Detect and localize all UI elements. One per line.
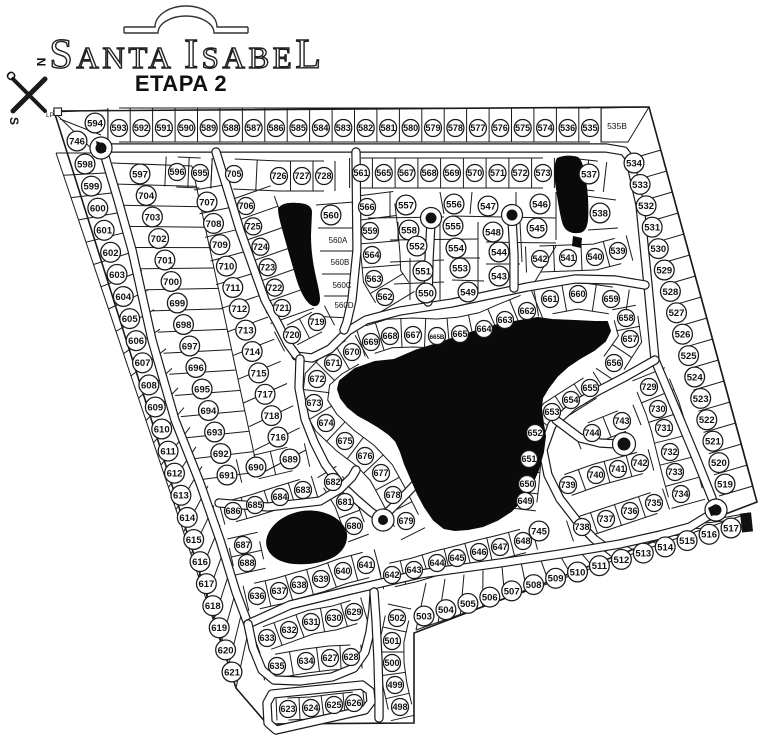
svg-text:562: 562 xyxy=(377,292,392,302)
svg-text:673: 673 xyxy=(306,398,321,408)
svg-text:508: 508 xyxy=(526,580,542,591)
svg-text:586: 586 xyxy=(268,123,283,133)
svg-text:ETAPA 2: ETAPA 2 xyxy=(135,71,227,96)
svg-text:592: 592 xyxy=(134,123,149,133)
svg-text:660: 660 xyxy=(570,289,585,299)
svg-text:702: 702 xyxy=(151,234,167,245)
svg-text:539: 539 xyxy=(610,246,625,256)
svg-text:524: 524 xyxy=(687,372,704,383)
svg-text:615: 615 xyxy=(186,535,203,546)
svg-text:529: 529 xyxy=(656,265,672,276)
svg-text:528: 528 xyxy=(662,287,678,298)
svg-text:632: 632 xyxy=(281,625,296,635)
svg-text:686: 686 xyxy=(225,506,240,516)
svg-text:533: 533 xyxy=(632,180,648,191)
svg-text:561: 561 xyxy=(353,168,368,178)
svg-text:520: 520 xyxy=(711,458,727,469)
svg-text:696: 696 xyxy=(188,363,204,374)
svg-text:537: 537 xyxy=(581,169,597,180)
svg-text:535B: 535B xyxy=(607,121,627,131)
svg-text:674: 674 xyxy=(318,418,333,428)
svg-text:625: 625 xyxy=(326,700,341,710)
svg-text:732: 732 xyxy=(662,447,677,457)
svg-text:671: 671 xyxy=(325,358,340,368)
svg-text:676: 676 xyxy=(357,451,372,461)
svg-text:588: 588 xyxy=(224,123,239,133)
svg-text:559: 559 xyxy=(362,226,377,236)
svg-text:695: 695 xyxy=(192,168,207,178)
svg-text:602: 602 xyxy=(103,248,119,259)
svg-text:505: 505 xyxy=(460,599,477,610)
svg-text:653: 653 xyxy=(544,407,559,417)
svg-text:608: 608 xyxy=(141,380,157,391)
svg-text:585: 585 xyxy=(291,123,306,133)
svg-text:619: 619 xyxy=(211,623,227,634)
svg-text:700: 700 xyxy=(163,277,179,288)
svg-text:607: 607 xyxy=(135,358,151,369)
svg-text:631: 631 xyxy=(303,617,318,627)
svg-text:613: 613 xyxy=(173,491,189,502)
svg-text:650: 650 xyxy=(519,479,534,489)
svg-text:637: 637 xyxy=(271,586,286,596)
svg-text:698: 698 xyxy=(176,320,192,331)
svg-text:536: 536 xyxy=(560,123,575,133)
svg-text:LP: LP xyxy=(46,112,54,119)
svg-text:669: 669 xyxy=(363,337,378,347)
svg-text:645: 645 xyxy=(449,553,464,563)
svg-text:535: 535 xyxy=(582,123,597,133)
svg-text:590: 590 xyxy=(179,123,194,133)
svg-text:693: 693 xyxy=(207,427,223,438)
svg-text:679: 679 xyxy=(398,516,413,526)
svg-text:540: 540 xyxy=(587,252,602,262)
svg-text:672: 672 xyxy=(309,374,324,384)
svg-text:516: 516 xyxy=(701,530,717,541)
svg-text:509: 509 xyxy=(548,574,564,585)
svg-text:623: 623 xyxy=(280,704,295,714)
svg-text:557: 557 xyxy=(398,200,414,211)
svg-text:684: 684 xyxy=(272,492,287,502)
svg-text:544: 544 xyxy=(491,247,508,258)
svg-text:678: 678 xyxy=(385,490,400,500)
svg-text:552: 552 xyxy=(409,241,425,252)
svg-text:548: 548 xyxy=(485,227,501,238)
svg-text:691: 691 xyxy=(219,470,236,481)
svg-text:697: 697 xyxy=(182,341,198,352)
svg-text:579: 579 xyxy=(425,123,440,133)
svg-text:583: 583 xyxy=(336,123,351,133)
svg-text:560A: 560A xyxy=(329,236,348,245)
svg-text:727: 727 xyxy=(294,171,309,181)
svg-text:612: 612 xyxy=(167,469,183,480)
svg-text:745: 745 xyxy=(531,526,548,537)
svg-text:736: 736 xyxy=(622,506,637,516)
svg-text:526: 526 xyxy=(675,330,691,341)
svg-text:510: 510 xyxy=(570,567,586,578)
svg-text:555: 555 xyxy=(445,221,462,232)
svg-text:565: 565 xyxy=(376,168,391,178)
svg-text:688: 688 xyxy=(239,558,254,568)
svg-text:721: 721 xyxy=(274,303,289,313)
svg-text:550: 550 xyxy=(418,288,434,299)
svg-text:746: 746 xyxy=(69,136,85,147)
svg-text:739: 739 xyxy=(560,480,575,490)
svg-text:651: 651 xyxy=(521,454,536,464)
svg-text:556: 556 xyxy=(446,199,462,210)
svg-text:716: 716 xyxy=(270,432,286,443)
svg-text:611: 611 xyxy=(160,447,176,458)
svg-text:635: 635 xyxy=(269,661,284,671)
svg-text:733: 733 xyxy=(667,467,682,477)
svg-text:499: 499 xyxy=(387,680,402,690)
svg-text:655: 655 xyxy=(582,383,597,393)
svg-text:580: 580 xyxy=(403,123,418,133)
svg-text:587: 587 xyxy=(246,123,261,133)
svg-text:624: 624 xyxy=(303,703,318,713)
svg-text:572: 572 xyxy=(513,168,528,178)
svg-text:643: 643 xyxy=(406,565,421,575)
svg-text:719: 719 xyxy=(309,317,324,327)
svg-text:567: 567 xyxy=(399,168,414,178)
svg-text:522: 522 xyxy=(699,415,715,426)
svg-text:668: 668 xyxy=(382,331,397,341)
svg-text:541: 541 xyxy=(560,253,575,263)
svg-text:724: 724 xyxy=(253,242,268,252)
svg-text:542: 542 xyxy=(532,254,547,264)
svg-text:628: 628 xyxy=(343,652,358,662)
svg-text:738: 738 xyxy=(574,522,589,532)
svg-text:729: 729 xyxy=(641,382,656,392)
svg-text:654: 654 xyxy=(563,395,578,405)
svg-text:553: 553 xyxy=(452,263,468,274)
svg-text:546: 546 xyxy=(532,199,548,210)
svg-text:640: 640 xyxy=(335,566,350,576)
svg-text:717: 717 xyxy=(257,390,273,401)
svg-text:502: 502 xyxy=(389,613,404,623)
svg-text:604: 604 xyxy=(115,292,132,303)
svg-text:680: 680 xyxy=(346,521,361,531)
svg-text:574: 574 xyxy=(538,123,553,133)
svg-text:564: 564 xyxy=(364,250,379,260)
svg-text:554: 554 xyxy=(448,243,465,254)
svg-text:576: 576 xyxy=(493,123,508,133)
svg-text:560D: 560D xyxy=(334,301,353,310)
svg-text:589: 589 xyxy=(201,123,216,133)
svg-text:525: 525 xyxy=(681,351,698,362)
svg-text:701: 701 xyxy=(157,255,174,266)
svg-text:677: 677 xyxy=(373,468,388,478)
svg-text:713: 713 xyxy=(238,326,254,337)
svg-text:543: 543 xyxy=(491,271,507,282)
svg-text:506: 506 xyxy=(482,593,498,604)
svg-text:683: 683 xyxy=(295,485,310,495)
svg-text:571: 571 xyxy=(490,168,505,178)
svg-text:709: 709 xyxy=(212,240,228,251)
svg-text:530: 530 xyxy=(650,244,666,255)
svg-text:549: 549 xyxy=(460,287,476,298)
svg-text:656: 656 xyxy=(606,358,621,368)
svg-text:527: 527 xyxy=(669,308,685,319)
svg-text:665B: 665B xyxy=(430,334,445,341)
svg-text:667: 667 xyxy=(405,330,420,340)
svg-text:503: 503 xyxy=(416,611,432,622)
svg-text:711: 711 xyxy=(225,283,241,294)
svg-text:534: 534 xyxy=(626,158,643,169)
svg-text:712: 712 xyxy=(231,304,247,315)
svg-text:740: 740 xyxy=(588,470,603,480)
svg-text:519: 519 xyxy=(717,479,733,490)
svg-text:603: 603 xyxy=(109,270,125,281)
svg-text:704: 704 xyxy=(138,191,155,202)
svg-text:626: 626 xyxy=(346,698,361,708)
svg-text:647: 647 xyxy=(492,542,507,552)
svg-text:513: 513 xyxy=(635,549,651,560)
svg-text:714: 714 xyxy=(244,347,261,358)
svg-text:S: S xyxy=(7,117,21,125)
svg-text:726: 726 xyxy=(271,171,286,181)
svg-text:723: 723 xyxy=(260,262,275,272)
svg-text:523: 523 xyxy=(693,394,709,405)
svg-text:593: 593 xyxy=(111,123,126,133)
svg-text:610: 610 xyxy=(154,425,170,436)
svg-text:638: 638 xyxy=(291,580,306,590)
svg-text:699: 699 xyxy=(169,298,185,309)
svg-text:642: 642 xyxy=(384,570,399,580)
svg-text:644: 644 xyxy=(429,558,444,568)
svg-text:566: 566 xyxy=(359,202,374,212)
svg-text:568: 568 xyxy=(422,168,437,178)
svg-text:649: 649 xyxy=(517,496,532,506)
svg-text:617: 617 xyxy=(198,579,214,590)
svg-text:744: 744 xyxy=(584,428,599,438)
svg-text:664: 664 xyxy=(476,324,491,334)
svg-text:728: 728 xyxy=(316,171,331,181)
svg-text:722: 722 xyxy=(267,283,282,293)
svg-text:621: 621 xyxy=(224,667,241,678)
svg-text:573: 573 xyxy=(535,168,550,178)
svg-text:661: 661 xyxy=(542,294,557,304)
svg-text:560C: 560C xyxy=(332,281,351,290)
svg-text:521: 521 xyxy=(705,437,722,448)
svg-text:639: 639 xyxy=(313,574,328,584)
svg-text:652: 652 xyxy=(527,428,542,438)
svg-text:742: 742 xyxy=(632,458,647,468)
svg-text:658: 658 xyxy=(618,313,633,323)
svg-text:601: 601 xyxy=(96,226,113,237)
svg-text:551: 551 xyxy=(415,266,432,277)
svg-text:646: 646 xyxy=(471,547,486,557)
svg-text:591: 591 xyxy=(156,123,171,133)
svg-text:594: 594 xyxy=(87,118,104,129)
svg-text:514: 514 xyxy=(657,542,674,553)
svg-text:692: 692 xyxy=(213,449,229,460)
svg-text:705: 705 xyxy=(226,169,241,179)
svg-text:708: 708 xyxy=(206,219,222,230)
svg-text:547: 547 xyxy=(480,201,496,212)
svg-text:710: 710 xyxy=(218,262,234,273)
svg-text:517: 517 xyxy=(723,523,739,534)
svg-text:690: 690 xyxy=(248,462,264,473)
svg-text:511: 511 xyxy=(592,561,608,572)
svg-text:707: 707 xyxy=(199,197,215,208)
svg-text:531: 531 xyxy=(644,223,661,234)
svg-text:630: 630 xyxy=(326,613,341,623)
svg-text:687: 687 xyxy=(235,540,250,550)
svg-text:620: 620 xyxy=(218,645,234,656)
svg-text:682: 682 xyxy=(325,477,340,487)
svg-text:665: 665 xyxy=(452,329,467,339)
svg-text:597: 597 xyxy=(132,169,148,180)
svg-text:507: 507 xyxy=(504,586,520,597)
svg-text:663: 663 xyxy=(497,315,512,325)
svg-text:662: 662 xyxy=(519,306,534,316)
svg-text:703: 703 xyxy=(144,212,160,223)
svg-text:515: 515 xyxy=(679,536,696,547)
svg-text:584: 584 xyxy=(313,123,328,133)
svg-text:609: 609 xyxy=(147,402,163,413)
svg-text:498: 498 xyxy=(392,702,407,712)
svg-text:706: 706 xyxy=(238,201,253,211)
svg-text:648: 648 xyxy=(515,536,530,546)
svg-text:670: 670 xyxy=(344,347,359,357)
svg-text:560: 560 xyxy=(323,210,339,221)
svg-text:512: 512 xyxy=(613,555,629,566)
svg-text:606: 606 xyxy=(128,336,144,347)
svg-text:634: 634 xyxy=(298,656,313,666)
svg-text:734: 734 xyxy=(673,489,688,499)
svg-text:538: 538 xyxy=(592,208,608,219)
svg-text:675: 675 xyxy=(337,436,352,446)
svg-text:570: 570 xyxy=(467,168,482,178)
svg-text:636: 636 xyxy=(249,591,264,601)
svg-text:599: 599 xyxy=(83,182,99,193)
svg-text:735: 735 xyxy=(646,498,661,508)
svg-text:633: 633 xyxy=(259,633,274,643)
svg-text:616: 616 xyxy=(192,557,208,568)
svg-text:715: 715 xyxy=(251,368,268,379)
svg-text:578: 578 xyxy=(448,123,463,133)
svg-text:629: 629 xyxy=(346,607,361,617)
svg-text:627: 627 xyxy=(322,653,337,663)
svg-text:681: 681 xyxy=(337,497,352,507)
svg-text:532: 532 xyxy=(638,201,654,212)
svg-text:569: 569 xyxy=(444,168,459,178)
svg-text:605: 605 xyxy=(122,314,139,325)
svg-text:720: 720 xyxy=(284,330,299,340)
svg-text:581: 581 xyxy=(381,123,396,133)
svg-text:577: 577 xyxy=(470,123,485,133)
svg-text:695: 695 xyxy=(194,384,211,395)
svg-text:743: 743 xyxy=(614,416,629,426)
svg-text:725: 725 xyxy=(246,222,261,232)
svg-text:718: 718 xyxy=(264,411,280,422)
svg-text:730: 730 xyxy=(650,404,665,414)
svg-text:614: 614 xyxy=(179,513,196,524)
svg-text:563: 563 xyxy=(366,274,381,284)
svg-text:545: 545 xyxy=(529,223,546,234)
svg-text:582: 582 xyxy=(358,123,373,133)
svg-text:657: 657 xyxy=(622,334,637,344)
svg-text:741: 741 xyxy=(610,464,625,474)
svg-text:659: 659 xyxy=(603,294,618,304)
svg-text:575: 575 xyxy=(515,123,530,133)
svg-text:500: 500 xyxy=(384,658,399,668)
svg-text:731: 731 xyxy=(656,423,671,433)
svg-text:558: 558 xyxy=(401,225,417,236)
svg-text:504: 504 xyxy=(438,605,455,616)
svg-text:618: 618 xyxy=(205,601,221,612)
svg-text:737: 737 xyxy=(598,514,613,524)
svg-text:596: 596 xyxy=(169,167,184,177)
svg-text:641: 641 xyxy=(358,560,373,570)
svg-text:560B: 560B xyxy=(331,258,350,267)
svg-text:689: 689 xyxy=(282,454,298,465)
svg-text:600: 600 xyxy=(90,204,106,215)
svg-text:694: 694 xyxy=(200,406,217,417)
svg-text:598: 598 xyxy=(77,159,93,170)
svg-text:501: 501 xyxy=(384,636,399,646)
svg-text:N: N xyxy=(34,58,48,67)
svg-text:685: 685 xyxy=(247,500,262,510)
